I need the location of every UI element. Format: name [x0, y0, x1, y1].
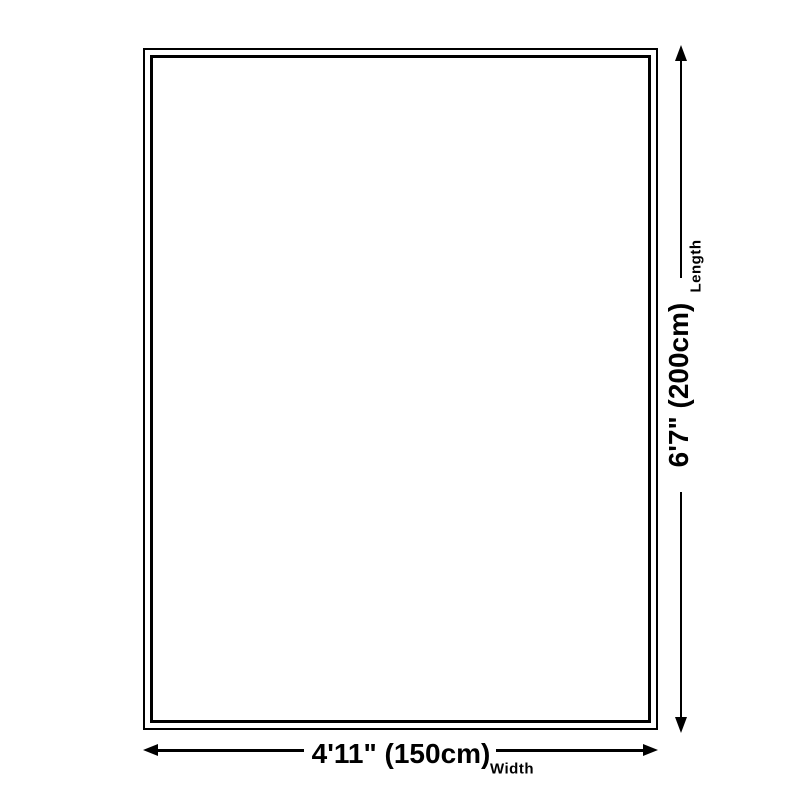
product-outline-inner-border [150, 55, 651, 723]
length-value: 6'7" (200cm) [665, 303, 693, 468]
width-dimension-line-left-segment [157, 749, 304, 752]
product-outline-outer-border [143, 48, 658, 730]
length-label: Length [689, 240, 704, 293]
length-dimension-line-top-segment [680, 59, 682, 278]
size-diagram: Length 6'7" (200cm) 4'11" (150cm) Width [0, 0, 800, 800]
arrowhead-down-icon [675, 717, 687, 733]
arrowhead-left-icon [143, 744, 158, 756]
width-dimension-line-right-segment [496, 749, 644, 752]
width-value: 4'11" (150cm) [312, 740, 491, 768]
arrowhead-right-icon [643, 744, 658, 756]
length-dimension-line-bottom-segment [680, 492, 682, 720]
width-label: Width [490, 762, 534, 777]
